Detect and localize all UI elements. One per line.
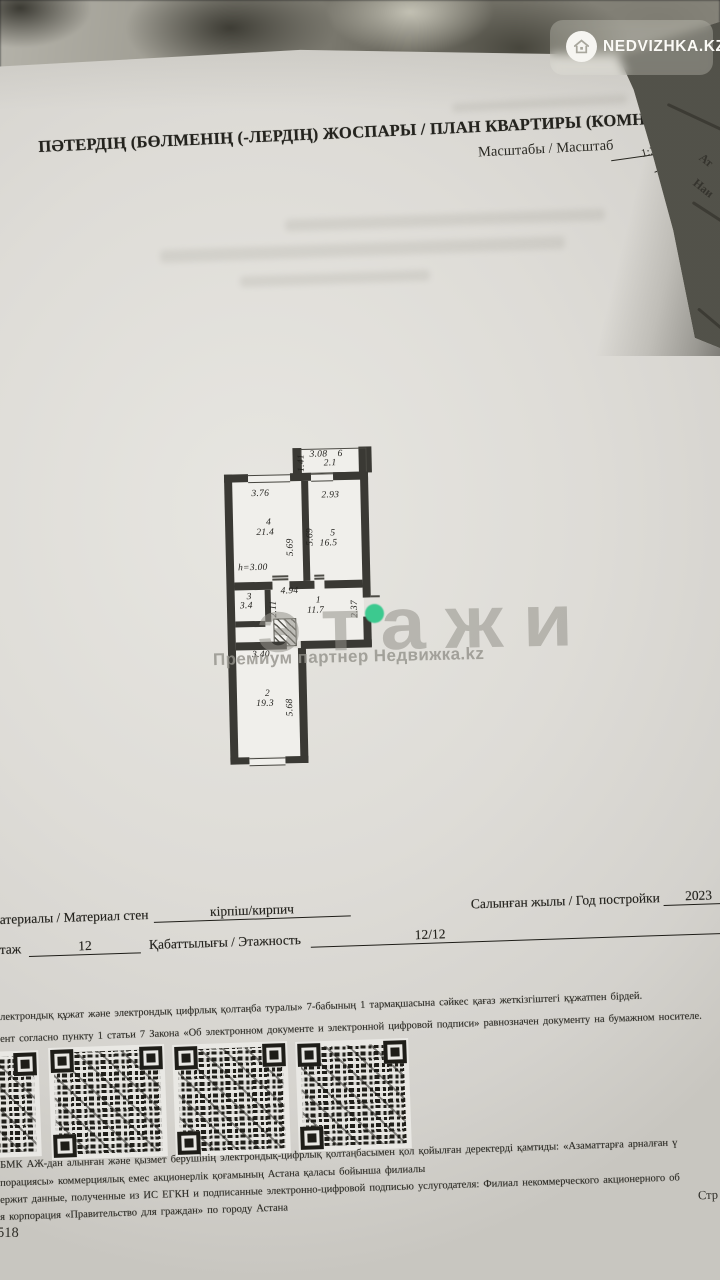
folded-page-rule: [692, 201, 720, 234]
wall: [285, 756, 308, 764]
folded-page-rule: [667, 103, 720, 136]
plan-dimension-label: 4: [266, 518, 271, 528]
plan-dimension-label: 5.69: [305, 528, 315, 546]
materials-label: атериалы / Материал стен: [0, 907, 149, 928]
floors-total-label: Қабаттылығы / Этажность: [149, 932, 301, 953]
folded-page-rule: [697, 307, 720, 331]
plan-dimension-label: 5.69: [285, 538, 295, 556]
bleed-through-smudge: [160, 236, 565, 263]
page-number: 518: [0, 1225, 19, 1242]
nedvizhka-logo: NEDVIZHKA.KZ: [550, 20, 713, 75]
plan-dimension-label: 3.76: [251, 489, 269, 499]
bleed-through-smudge: [240, 270, 430, 288]
plan-dimension-label: 21.4: [256, 528, 274, 538]
plan-dimension-label: 2: [265, 689, 270, 699]
qr-code: [172, 1041, 291, 1157]
window: [248, 474, 290, 483]
plan-dimension-label: h=3.00: [238, 563, 268, 574]
door-mark: [314, 574, 324, 576]
year-built-value: 2023: [664, 887, 720, 906]
plan-dimension-label: 5: [330, 528, 335, 538]
plan-dimension-label: 6: [337, 449, 342, 459]
folded-page-text: Ат: [696, 150, 716, 170]
plan-dimension-label: 3.4: [240, 601, 253, 611]
plan-dimension-label: 2.93: [321, 490, 339, 500]
folded-page-text: Наи: [690, 176, 717, 202]
screenshot-root: Ат Наи ПӘТЕРДІҢ (БӨЛМЕНІҢ (-ЛЕРДІҢ) ЖОСП…: [0, 0, 720, 1280]
plan-dimension-label: 5.68: [285, 698, 295, 716]
entrance-green-dot: [365, 604, 384, 623]
materials-value: кірпіш/кирпич: [153, 899, 351, 923]
floors-total-value: 12/12: [311, 917, 720, 948]
qr-code: [48, 1044, 168, 1160]
qr-code: [295, 1038, 412, 1152]
window: [249, 757, 285, 766]
plan-dimension-label: 19.3: [256, 699, 274, 709]
plan-dimension-label: 1.41: [297, 454, 307, 472]
logo-text: NEDVIZHKA.KZ: [603, 38, 720, 56]
balcony-door: [311, 473, 333, 481]
bleed-through-smudge: [285, 208, 605, 231]
floor-label: таж: [0, 941, 21, 958]
plan-dimension-label: 16.5: [319, 538, 337, 548]
door-mark: [314, 577, 324, 579]
house-icon: [566, 31, 597, 62]
spacer: [351, 912, 471, 916]
page-marker: Стр: [698, 1188, 719, 1204]
qr-code: [0, 1050, 42, 1160]
door-mark: [272, 578, 288, 580]
door-mark: [272, 575, 288, 577]
wall: [230, 757, 249, 764]
plan-dimension-label: 2.1: [324, 458, 337, 468]
floor-value: 12: [29, 936, 142, 957]
year-built-label: Салынған жылы / Год постройки: [471, 890, 661, 912]
